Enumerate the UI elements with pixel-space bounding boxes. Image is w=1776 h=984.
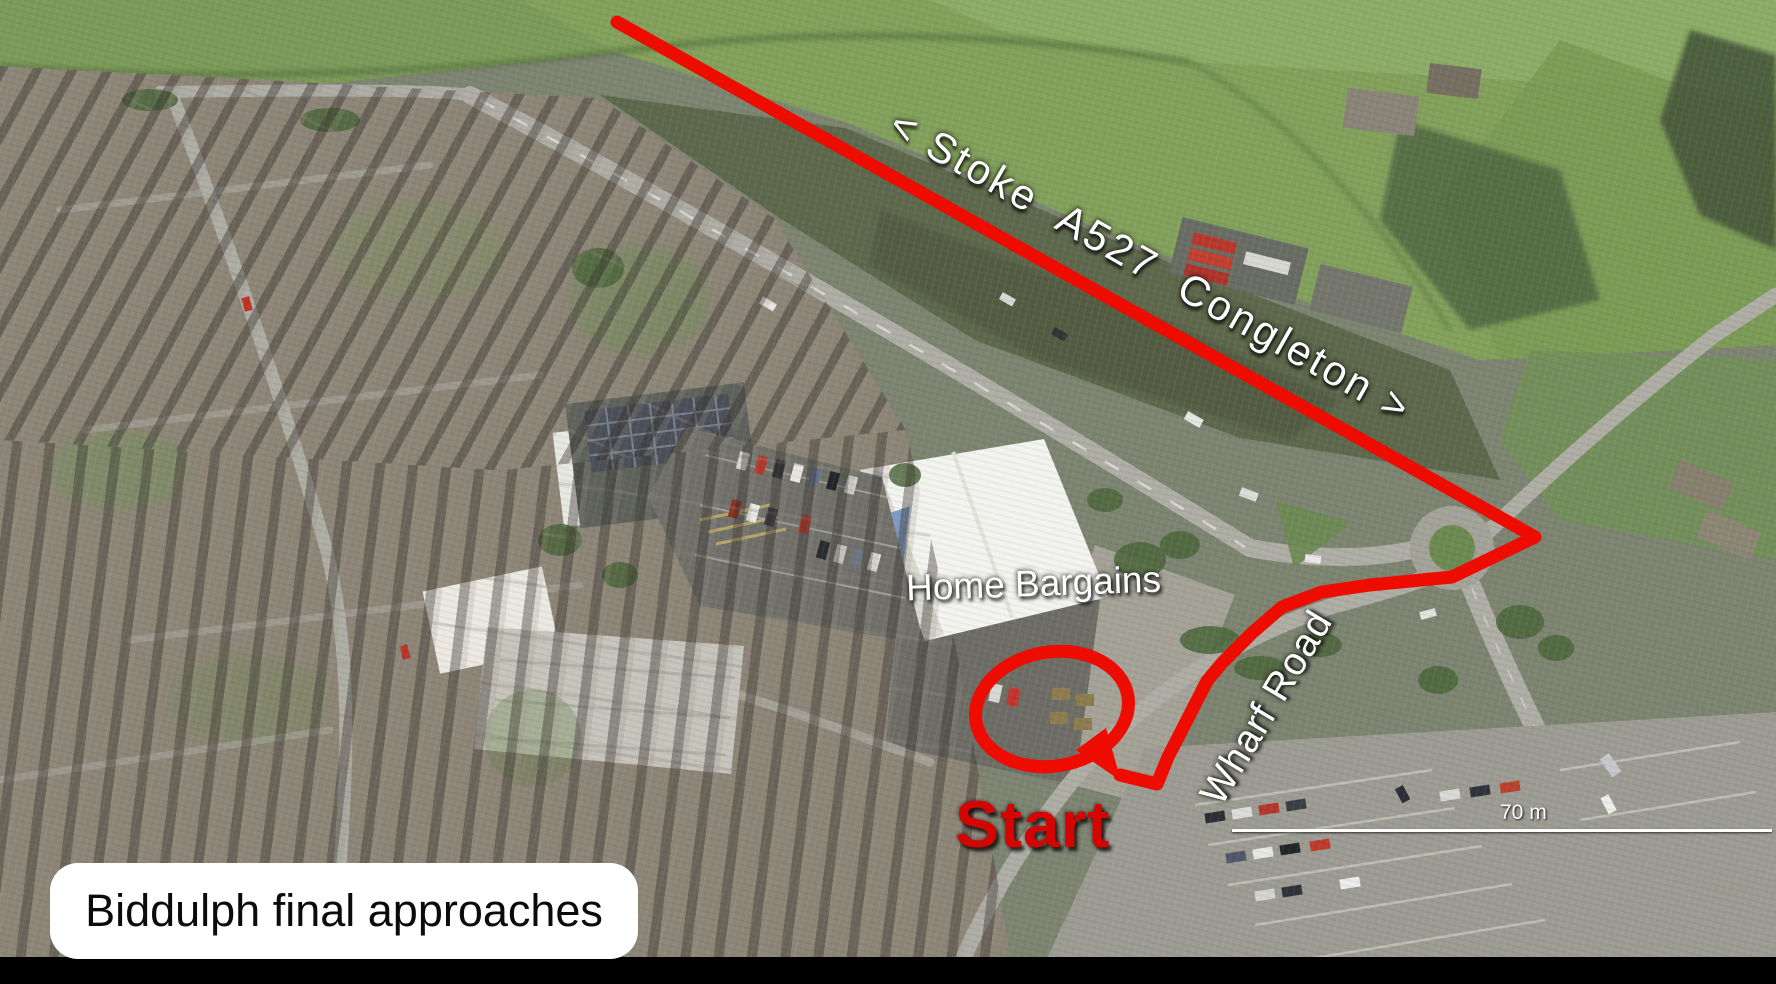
title-text: Biddulph final approaches [85,885,603,937]
satellite-imagery [0,0,1776,984]
store-label: Home Bargains [905,559,1161,610]
retail-car-park [1035,712,1776,984]
title-card: Biddulph final approaches [50,863,638,959]
start-label: Start [955,786,1110,862]
scale-bar-label: 70 m [1500,801,1547,825]
satellite-map-view[interactable]: < Stoke A527 Congleton > Home Bargains W… [0,0,1776,984]
bottom-letterbox [0,957,1776,984]
scale-bar-line [1232,829,1772,832]
